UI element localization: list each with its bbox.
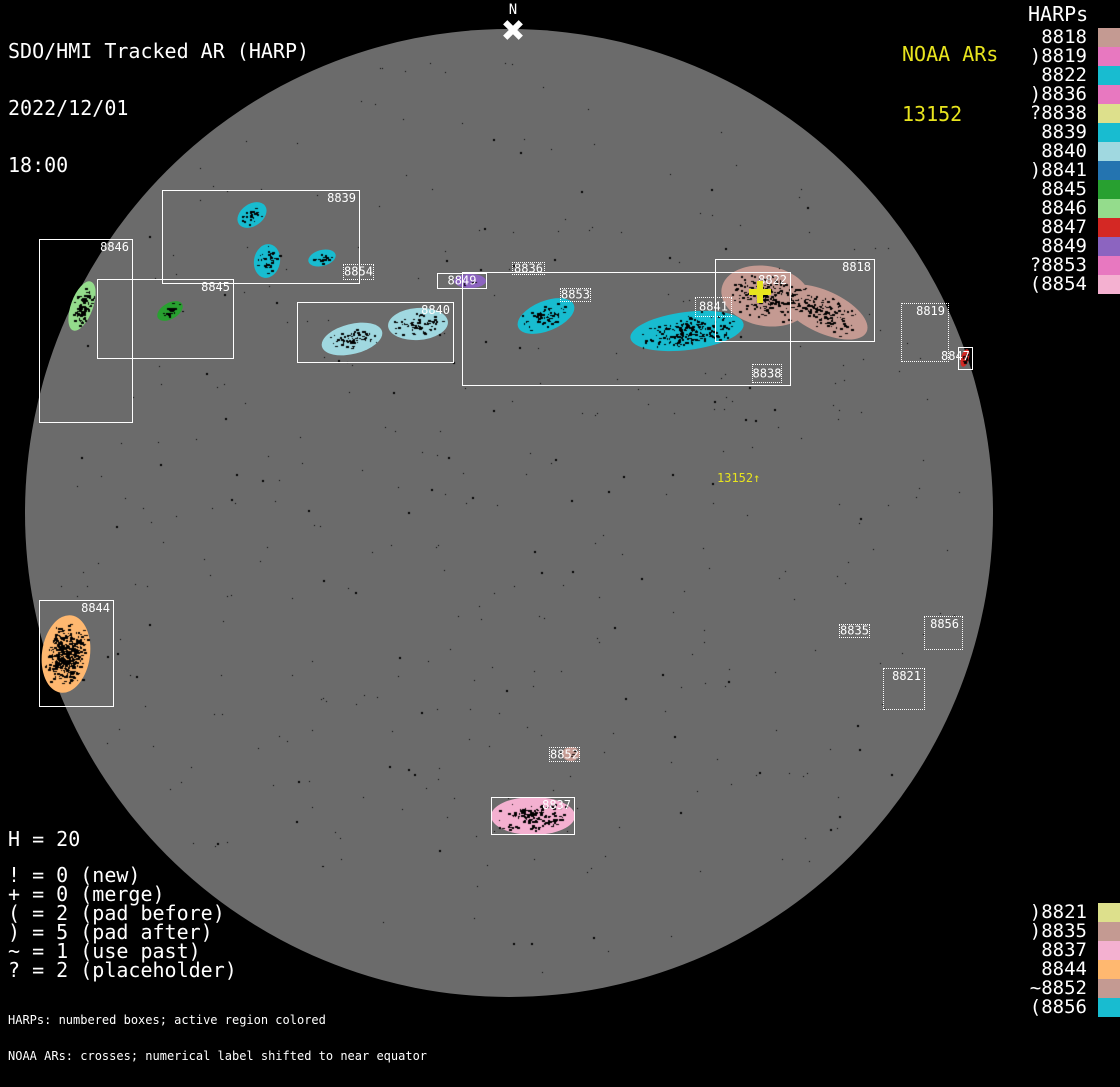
app-title: SDO/HMI Tracked AR (HARP) [8, 42, 309, 61]
harp-color-swatch [1098, 28, 1120, 47]
harp-color-swatch [1098, 104, 1120, 123]
title-block: SDO/HMI Tracked AR (HARP) 2022/12/01 18:… [8, 4, 309, 213]
symbol-stats-list: ! = 0 (new)+ = 0 (merge)( = 2 (pad befor… [8, 866, 237, 980]
overlay-text-layer: SDO/HMI Tracked AR (HARP) 2022/12/01 18:… [0, 0, 1120, 1024]
harp-legend-row: (8856 [1030, 998, 1120, 1017]
harps-heading: HARPs [1028, 5, 1088, 24]
north-pole-label: N [502, 2, 524, 18]
date-label: 2022/12/01 [8, 99, 309, 118]
harp-color-swatch [1098, 237, 1120, 256]
harp-number-label: (8854 [1030, 275, 1087, 294]
harps-legend-list-bottom: )8821)8835 8837 8844~8852(8856 [1030, 903, 1120, 1017]
noaa-heading: NOAA ARs [902, 44, 998, 64]
harp-color-swatch [1098, 941, 1120, 960]
harp-color-swatch [1098, 275, 1120, 294]
harp-color-swatch [1098, 922, 1120, 941]
noaa-shifted-number-label: 13152↑ [717, 471, 760, 485]
harp-color-swatch [1098, 66, 1120, 85]
harp-color-swatch [1098, 123, 1120, 142]
symbol-stat-line: ? = 2 (placeholder) [8, 961, 237, 980]
harp-color-swatch [1098, 979, 1120, 998]
harp-color-swatch [1098, 161, 1120, 180]
harp-color-swatch [1098, 85, 1120, 104]
harp-color-swatch [1098, 998, 1120, 1017]
harp-color-swatch [1098, 180, 1120, 199]
noaa-ar-cross-marker [749, 281, 771, 303]
harp-color-swatch [1098, 142, 1120, 161]
harp-legend-row: (8854 [1030, 275, 1120, 294]
footnote-noaa: NOAA ARs: crosses; numerical label shift… [8, 1050, 427, 1062]
harp-color-swatch [1098, 218, 1120, 237]
harp-color-swatch [1098, 903, 1120, 922]
harp-count-line: H = 20 [8, 830, 80, 849]
harp-number-label: (8856 [1030, 998, 1087, 1017]
harps-legend-list: 8818)8819 8822)8836?8838 8839 8840)8841 … [1030, 28, 1120, 294]
harp-color-swatch [1098, 199, 1120, 218]
noaa-block: NOAA ARs 13152 [902, 4, 998, 164]
time-label: 18:00 [8, 156, 309, 175]
harp-color-swatch [1098, 47, 1120, 66]
north-pole-x-marker [502, 19, 524, 41]
harp-color-swatch [1098, 960, 1120, 979]
footnotes: HARPs: numbered boxes; active region col… [8, 990, 427, 1086]
harp-viewer-screen: { "title": { "lines": ["SDO/HMI Tracked … [0, 0, 1120, 1024]
footnote-harps: HARPs: numbered boxes; active region col… [8, 1014, 427, 1026]
noaa-number: 13152 [902, 104, 998, 124]
harp-color-swatch [1098, 256, 1120, 275]
